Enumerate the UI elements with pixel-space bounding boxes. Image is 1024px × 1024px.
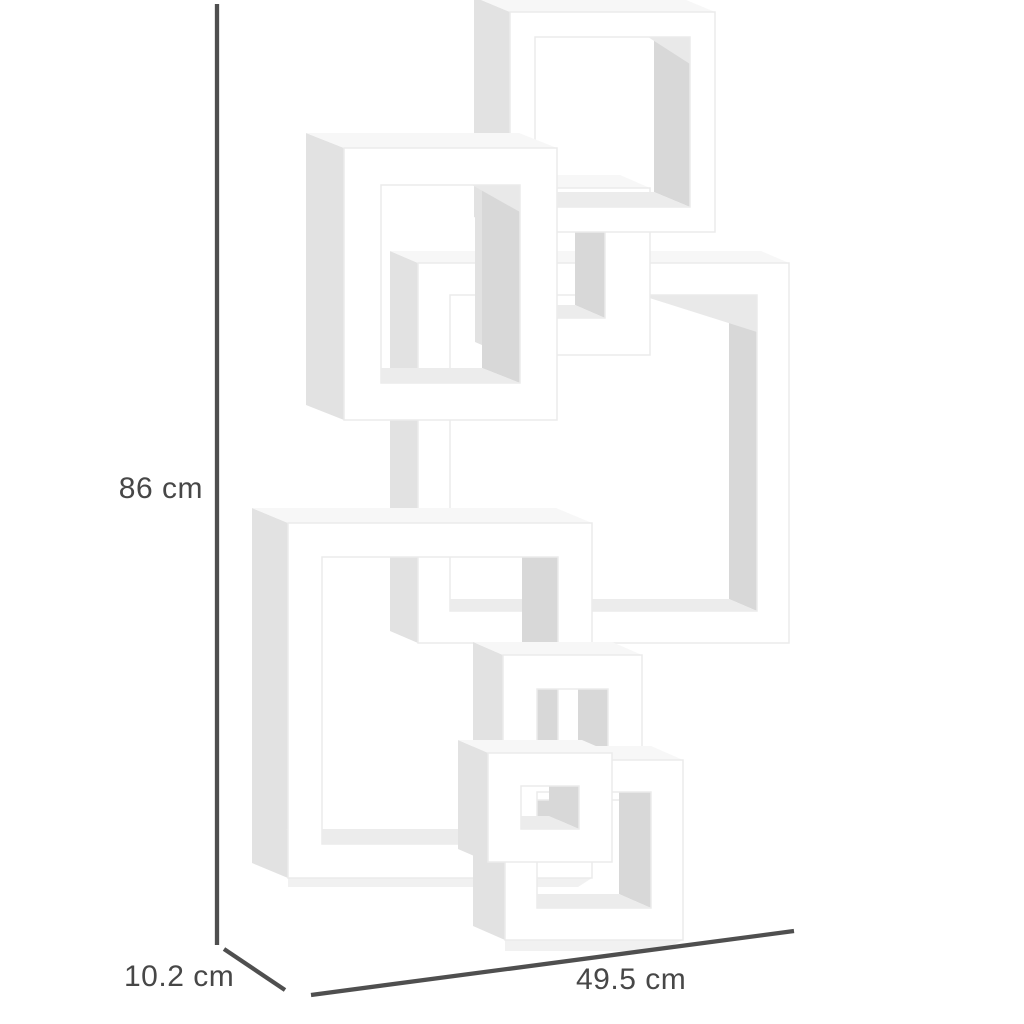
height-dimension-label: 86 cm: [100, 472, 203, 505]
depth-dimension-label: 10.2 cm: [124, 960, 234, 993]
product-dimension-image: 86 cm 10.2 cm 49.5 cm: [0, 0, 1024, 1024]
width-dimension-label: 49.5 cm: [576, 963, 686, 996]
shelf-illustration: [0, 0, 1024, 1024]
